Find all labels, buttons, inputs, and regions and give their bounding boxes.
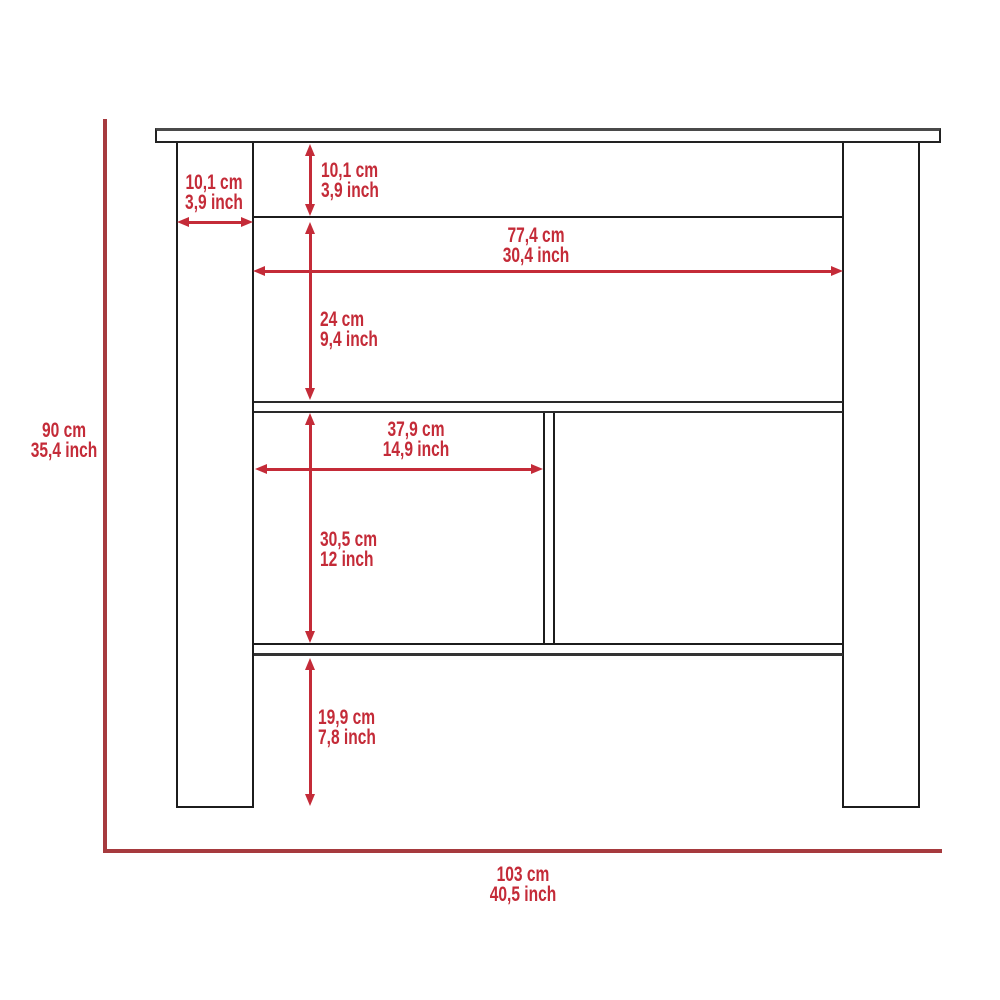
metric-value: 24 cm	[320, 310, 378, 330]
metric-value: 19,9 cm	[318, 708, 376, 728]
middle-shelf-bottom-line	[254, 411, 843, 413]
arrowhead-down-icon	[305, 631, 315, 643]
inner-width-arrow	[253, 266, 843, 277]
imperial-value: 3,9 inch	[170, 193, 259, 213]
metric-value: 103 cm	[479, 865, 568, 885]
top-panel-height-arrow	[305, 144, 316, 216]
arrowhead-down-icon	[305, 204, 315, 216]
overall-height-label: 90 cm 35,4 inch	[4, 421, 124, 461]
imperial-value: 9,4 inch	[320, 330, 378, 350]
center-divider-right-line	[553, 413, 555, 643]
arrowhead-right-icon	[531, 464, 543, 474]
compartment-height-arrow	[305, 413, 316, 643]
inner-width-label: 77,4 cm 30,4 inch	[476, 226, 596, 266]
leg-width-label: 10,1 cm 3,9 inch	[154, 173, 274, 213]
right-leg	[842, 143, 920, 808]
compartment-height-label: 30,5 cm 12 inch	[320, 530, 397, 570]
middle-shelf-top-line	[254, 401, 843, 403]
left-leg	[176, 143, 254, 808]
metric-value: 30,5 cm	[320, 530, 377, 550]
metric-value: 37,9 cm	[372, 420, 461, 440]
bottom-shelf-bottom-line	[254, 653, 843, 656]
furniture-dimension-diagram: 10,1 cm 3,9 inch 10,1 cm 3,9 inch 77,4 c…	[0, 0, 1000, 1000]
imperial-value: 30,4 inch	[492, 246, 581, 266]
metric-value: 90 cm	[20, 421, 109, 441]
compartment-width-arrow	[255, 464, 543, 475]
compartment-width-label: 37,9 cm 14,9 inch	[356, 420, 476, 460]
bottom-clearance-label: 19,9 cm 7,8 inch	[318, 708, 396, 748]
top-rail-line	[254, 216, 843, 218]
arrowhead-right-icon	[241, 217, 253, 227]
top-panel-height-label: 10,1 cm 3,9 inch	[321, 161, 399, 201]
imperial-value: 12 inch	[320, 550, 377, 570]
bottom-shelf-top-line	[254, 643, 843, 645]
metric-value: 10,1 cm	[170, 173, 259, 193]
tabletop	[155, 128, 941, 143]
bottom-clearance-arrow	[305, 658, 316, 806]
imperial-value: 40,5 inch	[479, 885, 568, 905]
upper-section-height-arrow	[305, 222, 316, 400]
arrowhead-down-icon	[305, 388, 315, 400]
upper-section-height-label: 24 cm 9,4 inch	[320, 310, 398, 350]
leg-width-arrow	[177, 217, 253, 228]
overall-height-extension-line	[103, 119, 107, 853]
imperial-value: 14,9 inch	[372, 440, 461, 460]
imperial-value: 3,9 inch	[321, 181, 379, 201]
overall-width-label: 103 cm 40,5 inch	[463, 865, 583, 905]
arrowhead-down-icon	[305, 794, 315, 806]
arrowhead-right-icon	[831, 266, 843, 276]
metric-value: 10,1 cm	[321, 161, 379, 181]
center-divider-left-line	[543, 413, 545, 643]
overall-width-extension-line	[103, 849, 942, 853]
imperial-value: 7,8 inch	[318, 728, 376, 748]
metric-value: 77,4 cm	[492, 226, 581, 246]
imperial-value: 35,4 inch	[20, 441, 109, 461]
